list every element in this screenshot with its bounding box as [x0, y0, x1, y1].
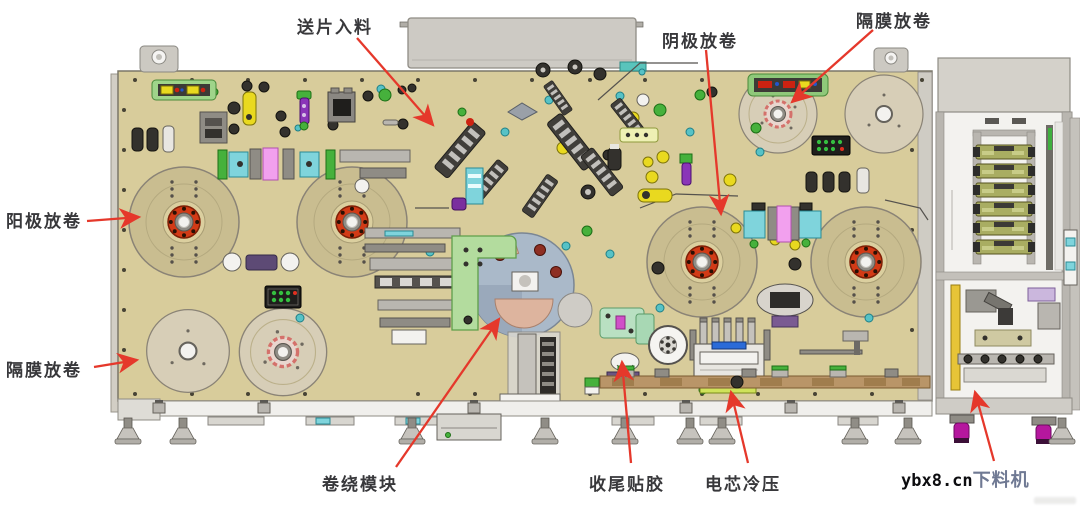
- control-keypad-left: [265, 286, 301, 308]
- caster-wheels: [950, 415, 1075, 444]
- feed-hopper: [400, 18, 646, 71]
- control-keypad-right: [812, 136, 850, 155]
- cathode-reel-2: [811, 207, 921, 317]
- between-anode-mechanism: [246, 255, 277, 270]
- unloader-cabinet: [936, 58, 1080, 444]
- corner-artifact: [1034, 497, 1076, 504]
- callout-label-cathode-unwind: 阴极放卷: [662, 27, 738, 52]
- machine-base: [118, 399, 932, 440]
- mount-tab-left: [140, 46, 178, 72]
- top-left-green-module: [152, 80, 216, 100]
- callout-label-unloader: 下料机: [973, 466, 1030, 492]
- callout-label-winding-module: 卷绕模块: [322, 470, 398, 495]
- mount-tab-right: [874, 48, 908, 72]
- callout-label-separator-unwind-left: 隔膜放卷: [6, 356, 82, 381]
- callout-label-cell-cold-press: 电芯冷压: [705, 470, 781, 495]
- callout-label-anode-unwind: 阳极放卷: [6, 207, 82, 232]
- watermark-and-unloader-label: ybx8.cn下料机: [901, 466, 1030, 492]
- callout-label-tail-taping: 收尾贴胶: [589, 470, 665, 495]
- callout-label-feed-in: 送片入料: [297, 13, 373, 38]
- machine-annotation-figure: 送片入料 阳极放卷 隔膜放卷 阴极放卷 隔膜放卷 卷绕模块 收尾贴胶 电芯冷压 …: [0, 0, 1080, 510]
- camera-box: [328, 88, 355, 122]
- separator-reel-top-2: [845, 75, 923, 153]
- site-watermark: ybx8.cn: [901, 471, 973, 491]
- separator-reel-bottom-2: [239, 308, 326, 395]
- electrode-splice-right: [744, 203, 821, 248]
- anode-reel-1: [129, 167, 239, 277]
- callout-label-separator-unwind-right: 隔膜放卷: [856, 7, 932, 32]
- white-tape-reel: [649, 326, 687, 364]
- machine-diagram: [0, 0, 1080, 510]
- top-right-green-module: [748, 74, 828, 96]
- cathode-reel-1: [647, 207, 757, 317]
- separator-reel-bottom-1: [147, 310, 230, 393]
- electrode-splice-left: [218, 148, 335, 180]
